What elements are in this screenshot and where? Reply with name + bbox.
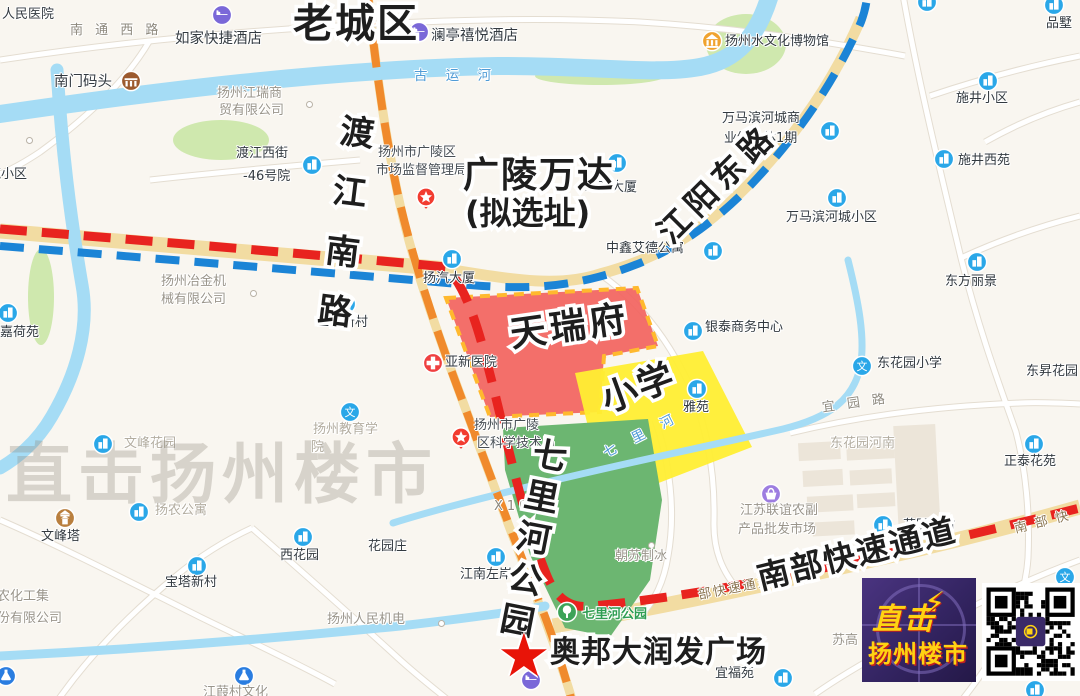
dot-marker xyxy=(648,542,655,549)
poi-label[interactable]: 花园庄 xyxy=(368,540,407,555)
poi-label[interactable]: 扬州市广陵 xyxy=(474,419,539,434)
poi-label[interactable]: 渡江西街 xyxy=(236,147,288,162)
poi-label[interactable]: 万马滨河城小区 xyxy=(786,211,877,226)
poi-label[interactable]: 扬州水文化博物馆 xyxy=(725,35,829,50)
poi-label[interactable]: 宝塔新村 xyxy=(165,576,217,591)
poi-label: 股份有限公司 xyxy=(0,612,62,627)
poi-label[interactable]: 东方丽景 xyxy=(945,275,997,290)
bldg-icon[interactable] xyxy=(916,0,938,19)
poi-label[interactable]: 澜亭禧悦酒店 xyxy=(431,28,518,45)
poi-label[interactable]: 市场监督管理局 xyxy=(376,164,467,179)
poi-label[interactable]: 嘉荷苑 xyxy=(0,326,39,341)
poi-label: 江葭村文化 xyxy=(203,686,268,696)
poi-label[interactable]: 正泰花苑 xyxy=(1004,455,1056,470)
bldg-icon[interactable] xyxy=(819,120,841,148)
poi-label: 朝苏制冰 xyxy=(615,550,667,565)
poi-label[interactable]: 施井小区 xyxy=(956,92,1008,107)
poi-label[interactable]: 西花园 xyxy=(280,549,319,564)
poi-label[interactable]: 人民医院 xyxy=(2,8,54,23)
qr-code xyxy=(982,583,1080,681)
bldg-icon[interactable] xyxy=(933,148,955,176)
channel-logo: 直击 ⚡ 扬州楼市 xyxy=(862,578,976,682)
poi-label: 南 通 西 路 xyxy=(70,24,162,39)
annotation-label: (拟选址) xyxy=(465,197,590,229)
poi-label[interactable]: 如家快捷酒店 xyxy=(175,31,262,48)
bldg-icon[interactable] xyxy=(772,667,794,695)
poi-label[interactable]: 南门码头 xyxy=(54,74,112,91)
poi-label[interactable]: 雅苑 xyxy=(683,401,709,416)
bldg-icon[interactable] xyxy=(682,320,704,348)
lightning-icon: ⚡ xyxy=(924,586,945,621)
dot-marker xyxy=(438,620,445,627)
poi-label[interactable]: 文峰塔 xyxy=(41,530,80,545)
poi-label: 苏高 xyxy=(832,634,858,649)
poi-label: 扬农化工集 xyxy=(0,590,49,605)
bldg-icon[interactable] xyxy=(128,501,150,529)
poi-label[interactable]: 施井西苑 xyxy=(958,154,1010,169)
pier-icon[interactable] xyxy=(120,70,142,98)
poi-label[interactable]: 扬州市广陵区 xyxy=(378,146,456,161)
bldg-icon[interactable] xyxy=(1024,679,1046,696)
school-icon[interactable] xyxy=(851,355,873,383)
poi-label[interactable]: 银泰商务中心 xyxy=(705,321,783,336)
poi-label: 贸有限公司 xyxy=(219,104,284,119)
poi-label[interactable]: 亚新医院 xyxy=(445,356,497,371)
poi-label: 扬州冶金机 xyxy=(161,275,226,290)
poi-label[interactable]: 七里河公园 xyxy=(582,608,647,623)
school-icon[interactable] xyxy=(339,401,361,429)
poi-label: 扬州江瑞商 xyxy=(217,87,282,102)
flask-icon[interactable] xyxy=(0,665,17,693)
poi-label: 产品批发市场 xyxy=(738,523,816,538)
dot-marker xyxy=(250,290,257,297)
map-canvas[interactable]: 文 直击扬州楼市 ★ 直击 ⚡ 扬州楼市 人民医院南 通 西 路如家快捷酒店澜亭… xyxy=(0,0,1080,696)
poi-label: 扬州人民机电 xyxy=(327,613,405,628)
park-icon[interactable] xyxy=(556,601,578,629)
hotel-icon[interactable] xyxy=(211,4,233,32)
museum-icon[interactable] xyxy=(701,30,723,58)
poi-label[interactable]: -46号院 xyxy=(243,170,290,185)
annotation-label: 奥邦大润发广场 xyxy=(550,638,767,668)
logo-title-line2: 扬州楼市 xyxy=(868,634,968,669)
bldg-icon[interactable] xyxy=(301,154,323,182)
poi-label[interactable]: 东昇花园 xyxy=(1026,365,1078,380)
bldg-icon[interactable] xyxy=(92,433,114,461)
star-badge-icon[interactable] xyxy=(415,183,437,211)
poi-label[interactable]: 苑小区 xyxy=(0,168,27,183)
poi-label: 江苏联谊农副 xyxy=(740,504,818,519)
annotation-label: 老城区 xyxy=(293,4,419,44)
watermark-text: 直击扬州楼市 xyxy=(6,421,438,517)
poi-label: 古 运 河 xyxy=(414,69,498,85)
dot-marker xyxy=(306,101,313,108)
poi-label[interactable]: 扬汽大厦 xyxy=(423,272,475,287)
hospital-icon[interactable] xyxy=(422,352,444,380)
annotation-label: 广陵万达 xyxy=(463,158,615,194)
destination-star-marker[interactable]: ★ xyxy=(497,626,551,686)
bldg-icon[interactable] xyxy=(702,240,724,268)
poi-label: 械有限公司 xyxy=(161,293,226,308)
dot-marker xyxy=(26,137,33,144)
poi-label[interactable]: 品墅 xyxy=(1046,17,1072,32)
star-badge-icon[interactable] xyxy=(450,423,472,451)
poi-label: 东花园河南 xyxy=(830,437,895,452)
poi-label[interactable]: 东花园小学 xyxy=(877,357,942,372)
